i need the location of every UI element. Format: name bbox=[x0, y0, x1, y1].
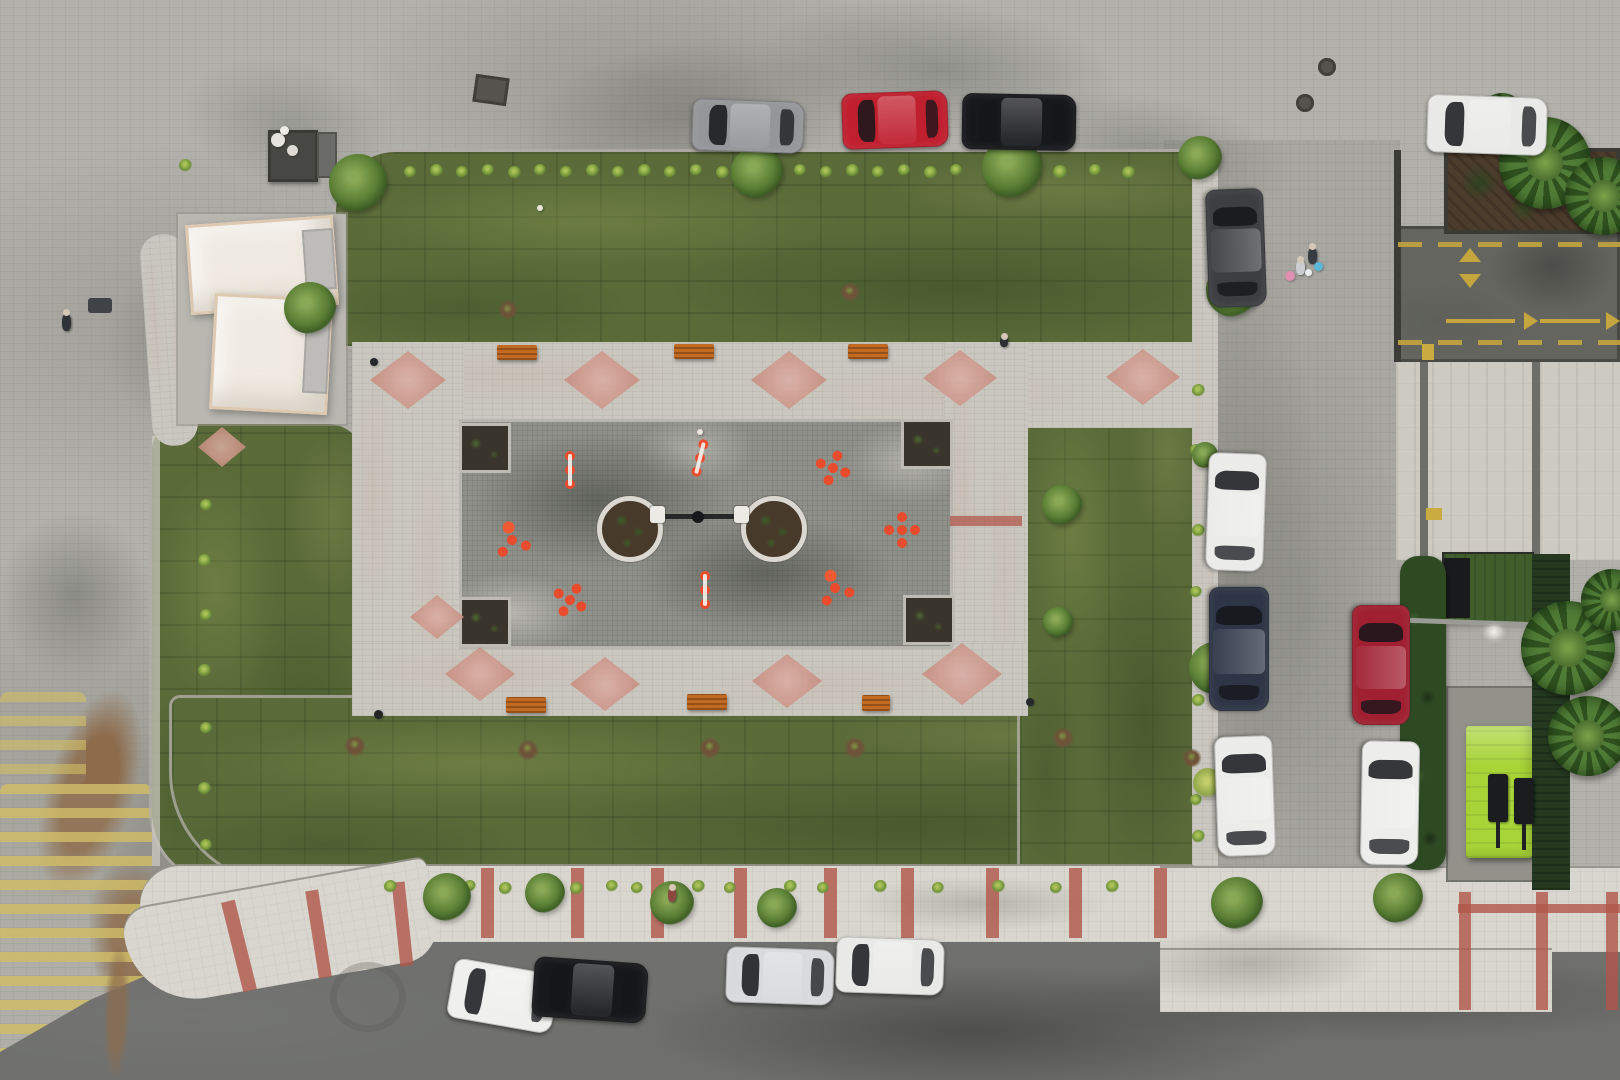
car-windshield bbox=[1368, 759, 1412, 780]
ev-charger bbox=[1488, 774, 1508, 822]
manhole bbox=[472, 74, 510, 106]
sidewalk-red-band bbox=[1154, 868, 1167, 938]
red-paver-stripe bbox=[950, 516, 1022, 526]
shrub bbox=[198, 554, 211, 567]
street-tree bbox=[525, 873, 565, 913]
circular-planter bbox=[741, 496, 807, 562]
sidewalk-red-band bbox=[1069, 868, 1082, 938]
car-white bbox=[1205, 452, 1267, 572]
car-roof bbox=[1210, 492, 1261, 536]
shrub bbox=[950, 164, 962, 176]
car-rear-window bbox=[921, 948, 935, 987]
shrub bbox=[1192, 694, 1205, 707]
street-tree bbox=[1373, 873, 1423, 923]
shrub bbox=[794, 164, 806, 176]
shrub bbox=[384, 880, 397, 893]
shrub bbox=[606, 880, 618, 892]
car-roof bbox=[1365, 783, 1416, 828]
shrub bbox=[612, 166, 624, 178]
outdoor-gym-equipment bbox=[885, 513, 919, 547]
shrub bbox=[820, 166, 832, 178]
sidewalk-red-band bbox=[734, 868, 747, 938]
manhole bbox=[1318, 58, 1336, 76]
car-roof bbox=[1210, 228, 1261, 272]
car-white bbox=[835, 936, 945, 996]
sapling-mulch bbox=[498, 300, 518, 320]
park-bench bbox=[848, 344, 888, 359]
bollard bbox=[374, 710, 383, 719]
shrub bbox=[664, 166, 676, 178]
car-rear-window bbox=[1361, 700, 1400, 714]
shrub bbox=[692, 880, 705, 893]
car-black bbox=[962, 93, 1077, 151]
shrub bbox=[570, 882, 583, 895]
car-rear-window bbox=[1227, 830, 1267, 846]
ev-charger bbox=[1514, 778, 1534, 824]
sidewalk-red-band bbox=[481, 868, 494, 938]
corner-planter bbox=[462, 426, 508, 470]
trash-bag bbox=[287, 145, 298, 156]
cart bbox=[88, 298, 112, 313]
tree bbox=[1042, 485, 1082, 525]
car-silver bbox=[691, 98, 805, 154]
car-white bbox=[1360, 741, 1420, 866]
car-windshield bbox=[1216, 606, 1262, 626]
shrub bbox=[1122, 166, 1135, 179]
sapling-mulch bbox=[844, 737, 866, 759]
car-roof bbox=[482, 968, 529, 1025]
park-bench bbox=[674, 344, 714, 359]
sidewalk-red-band bbox=[1459, 892, 1471, 1010]
balloon-pink bbox=[1285, 271, 1295, 281]
shrub bbox=[898, 164, 910, 176]
car-roof bbox=[570, 963, 615, 1017]
tire-mark bbox=[330, 962, 406, 1032]
shrub bbox=[638, 164, 651, 177]
trash-bag bbox=[280, 126, 289, 135]
shrub bbox=[846, 164, 859, 177]
shrub bbox=[716, 166, 729, 179]
shrub bbox=[198, 782, 211, 795]
car-rear-window bbox=[622, 972, 638, 1014]
car-roof bbox=[729, 103, 771, 149]
shrub bbox=[499, 882, 512, 895]
tree bbox=[731, 146, 783, 198]
sidewalk-red-band bbox=[901, 868, 914, 938]
white-marker bbox=[697, 429, 703, 435]
car-windshield bbox=[1359, 623, 1403, 642]
yellow-dashed-line bbox=[1398, 242, 1620, 247]
seesaw-pad bbox=[650, 506, 665, 523]
drain-channel bbox=[1420, 362, 1428, 560]
right-arrow-marking bbox=[1540, 312, 1620, 330]
park-bench bbox=[497, 345, 537, 360]
kiosk bbox=[1444, 554, 1532, 622]
pedestrian bbox=[1296, 260, 1305, 275]
shrub bbox=[534, 164, 546, 176]
tree bbox=[1178, 136, 1222, 180]
seesaw-pad bbox=[734, 506, 749, 523]
shrub bbox=[430, 164, 443, 177]
shrub bbox=[456, 166, 468, 178]
shrub bbox=[1050, 882, 1062, 894]
shrub bbox=[508, 166, 521, 179]
wet-stain bbox=[0, 510, 150, 680]
street-tree bbox=[757, 888, 797, 928]
car-roof bbox=[1356, 646, 1406, 689]
car-windshield bbox=[1215, 470, 1260, 490]
yellow-mark bbox=[1426, 508, 1442, 520]
white-marker bbox=[537, 205, 543, 211]
outdoor-gym-equipment bbox=[553, 453, 587, 487]
drain-channel bbox=[1532, 362, 1540, 560]
pedestrian bbox=[1000, 336, 1008, 347]
car-rear-window bbox=[1215, 546, 1255, 562]
car-windshield bbox=[708, 105, 727, 145]
suv-white bbox=[1426, 94, 1548, 156]
shrub bbox=[179, 159, 192, 172]
car-roof bbox=[1000, 98, 1042, 147]
car-windshield bbox=[549, 964, 570, 1011]
sapling-mulch bbox=[1052, 727, 1074, 749]
sapling-mulch bbox=[517, 739, 539, 761]
pedestrian bbox=[668, 888, 676, 902]
shrub bbox=[874, 880, 887, 893]
car-rear-window bbox=[1218, 282, 1258, 298]
car-silver bbox=[725, 946, 835, 1006]
shrub bbox=[198, 664, 211, 677]
sidewalk-red-band bbox=[986, 868, 999, 938]
car-windshield bbox=[1444, 102, 1465, 147]
corner-planter bbox=[904, 422, 950, 466]
tree bbox=[284, 282, 336, 334]
shrub bbox=[724, 882, 736, 894]
car-black bbox=[531, 956, 649, 1024]
yellow-mark bbox=[1422, 344, 1434, 360]
shrub bbox=[924, 166, 937, 179]
shrub bbox=[1192, 524, 1205, 537]
car-windshield bbox=[1222, 753, 1267, 774]
outdoor-gym-equipment bbox=[688, 573, 722, 607]
palm-tree bbox=[1548, 696, 1620, 776]
shrub bbox=[1192, 830, 1205, 843]
curb-left bbox=[152, 436, 160, 866]
two-way-arrow-marking bbox=[1450, 248, 1490, 288]
car-rear-window bbox=[811, 958, 825, 997]
shrub bbox=[1192, 384, 1205, 397]
car-roof bbox=[872, 941, 913, 990]
tree bbox=[329, 154, 387, 212]
car-rear-window bbox=[925, 99, 939, 137]
sidewalk-red-band bbox=[1606, 892, 1618, 1010]
shrub bbox=[932, 882, 944, 894]
aerial-park-photo bbox=[0, 0, 1620, 1080]
street-lamp bbox=[1486, 626, 1502, 638]
car-rear-window bbox=[1219, 685, 1260, 700]
shrub bbox=[404, 166, 416, 178]
car-windshield bbox=[1213, 206, 1258, 226]
shrub bbox=[560, 166, 572, 178]
park-bench bbox=[687, 694, 727, 710]
shrub bbox=[1190, 586, 1202, 598]
balloon-blue bbox=[1314, 262, 1323, 271]
shrub bbox=[200, 609, 212, 621]
tactile-paving bbox=[0, 692, 86, 784]
bollard bbox=[1026, 698, 1034, 706]
seesaw-pivot bbox=[692, 511, 704, 523]
street-tree bbox=[1211, 877, 1263, 929]
car-darkred bbox=[1352, 605, 1410, 725]
car-rear-window bbox=[1369, 839, 1409, 855]
pedestrian bbox=[62, 314, 71, 331]
car-windshield bbox=[857, 99, 875, 142]
shrub bbox=[817, 882, 829, 894]
shrub bbox=[690, 164, 702, 176]
shrub bbox=[200, 499, 212, 511]
street-tree bbox=[423, 873, 471, 921]
fence bbox=[1394, 150, 1401, 362]
park-bench bbox=[862, 695, 890, 711]
shrub bbox=[586, 164, 599, 177]
sidewalk-red-band bbox=[1536, 892, 1548, 1010]
car-roof bbox=[877, 95, 917, 144]
shrub bbox=[1053, 165, 1067, 179]
corner-planter bbox=[462, 600, 508, 644]
car-roof bbox=[762, 951, 803, 1000]
corner-planter bbox=[906, 598, 952, 642]
car-rear-window bbox=[1521, 106, 1537, 146]
dirt-streak bbox=[102, 944, 133, 1080]
car-windshield bbox=[741, 953, 760, 996]
tree bbox=[1043, 607, 1073, 637]
sapling-mulch bbox=[840, 282, 860, 302]
shrub bbox=[482, 164, 494, 176]
car-darkblue bbox=[1209, 587, 1269, 711]
right-arrow-marking bbox=[1446, 312, 1538, 330]
sidewalk-red-band bbox=[571, 868, 584, 938]
shrub bbox=[200, 722, 212, 734]
bollard bbox=[370, 358, 378, 366]
car-white bbox=[1214, 735, 1276, 857]
car-red bbox=[841, 90, 949, 150]
shrub bbox=[992, 880, 1005, 893]
sapling-mulch bbox=[699, 737, 721, 759]
car-roof bbox=[1467, 99, 1512, 150]
car-roof bbox=[1213, 629, 1265, 674]
shrub bbox=[1089, 164, 1101, 176]
park-bench bbox=[506, 697, 546, 713]
car-rear-window bbox=[1052, 104, 1066, 142]
sapling-mulch bbox=[1182, 748, 1202, 768]
sapling-mulch bbox=[344, 735, 366, 757]
car-roof bbox=[1219, 776, 1270, 821]
car-windshield bbox=[851, 943, 870, 986]
car-rear-window bbox=[780, 109, 795, 145]
shrub bbox=[200, 839, 212, 851]
shrub bbox=[872, 166, 884, 178]
walkway-vertical bbox=[1396, 362, 1620, 560]
shrub bbox=[631, 882, 643, 894]
car-darkgray bbox=[1205, 188, 1267, 308]
manhole bbox=[1296, 94, 1314, 112]
sidewalk-red-band bbox=[824, 868, 837, 938]
shrub bbox=[1106, 880, 1119, 893]
balloon-white bbox=[1305, 269, 1312, 276]
car-windshield bbox=[979, 100, 998, 143]
trash-bag bbox=[271, 133, 285, 147]
